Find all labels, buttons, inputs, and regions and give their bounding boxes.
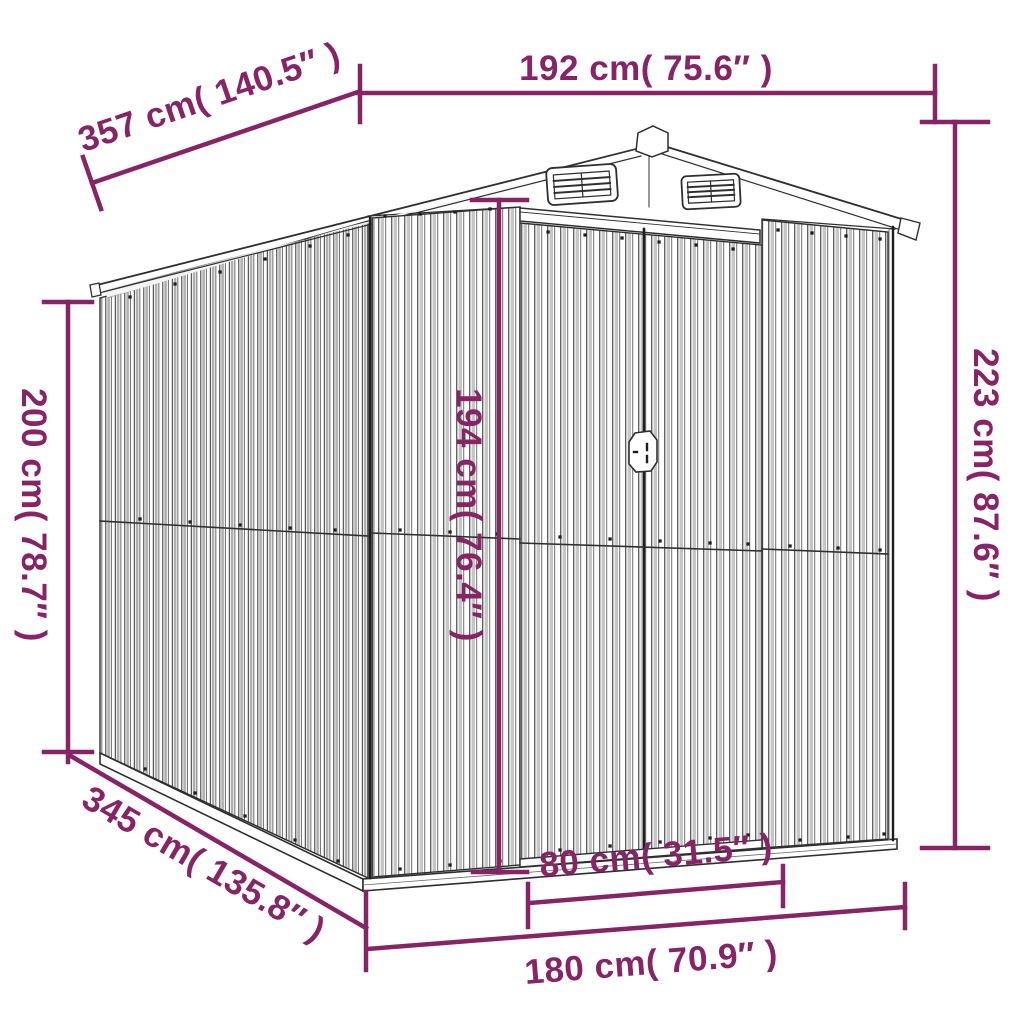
left-roof-end-cap bbox=[90, 283, 101, 297]
diagram-canvas: 192 cm( 75.6″ ) 357 cm( 140.5″ ) 200 cm(… bbox=[0, 0, 1024, 1024]
door-handle bbox=[629, 431, 657, 472]
dim-label-right-height: 223 cm( 87.6″ ) bbox=[966, 348, 1005, 602]
sliding-doors bbox=[520, 223, 762, 861]
dim-label-door-height: 194 cm( 76.4″ ) bbox=[449, 388, 488, 642]
front-right-panel bbox=[762, 220, 888, 848]
dim-label-top-width: 192 cm( 75.6″ ) bbox=[519, 49, 773, 88]
gable-vent-left bbox=[546, 164, 618, 206]
dim-label-left-height: 200 cm( 78.7″ ) bbox=[14, 388, 53, 642]
garden-shed-dimension-diagram: 192 cm( 75.6″ ) 357 cm( 140.5″ ) 200 cm(… bbox=[0, 0, 1024, 1024]
gable-vent-right bbox=[681, 174, 741, 210]
